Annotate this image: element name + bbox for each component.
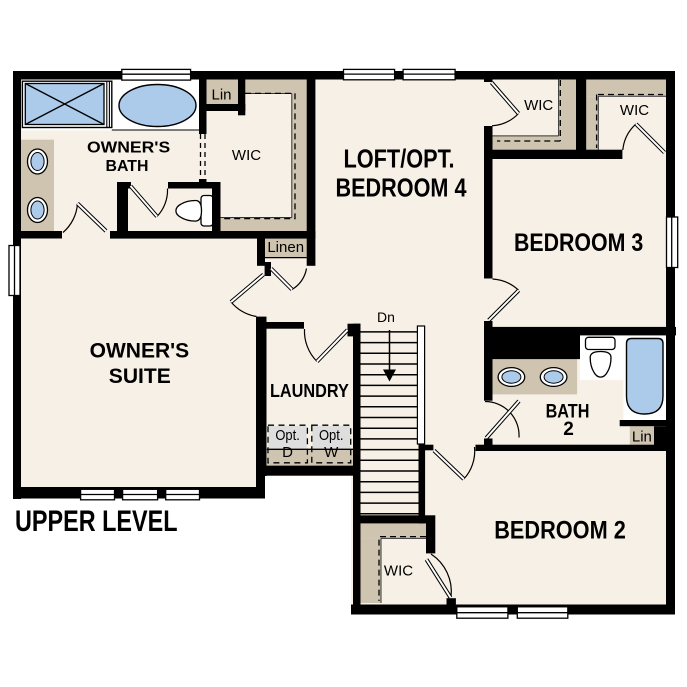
svg-text:BATH: BATH [106,158,149,175]
svg-text:OWNER'S: OWNER'S [87,140,170,157]
svg-text:Opt.: Opt. [275,427,300,444]
svg-text:OWNER'S: OWNER'S [90,339,190,363]
svg-text:Linen: Linen [267,239,304,256]
svg-text:Lin: Lin [211,87,231,104]
svg-text:Lin: Lin [632,429,652,446]
svg-text:SUITE: SUITE [109,364,171,388]
svg-text:WIC: WIC [524,97,553,114]
svg-text:W: W [324,444,339,461]
svg-text:LAUNDRY: LAUNDRY [270,380,349,401]
svg-text:BEDROOM 2: BEDROOM 2 [494,517,626,545]
svg-text:WIC: WIC [384,563,413,580]
svg-text:WIC: WIC [232,147,261,164]
svg-text:Opt.: Opt. [319,427,344,444]
svg-text:Dn: Dn [377,309,395,325]
svg-text:D: D [282,444,293,461]
svg-text:LOFT/OPT.: LOFT/OPT. [344,143,455,173]
svg-text:WIC: WIC [620,102,649,119]
svg-text:UPPER LEVEL: UPPER LEVEL [15,505,178,538]
svg-text:BEDROOM 3: BEDROOM 3 [514,229,643,257]
svg-text:2: 2 [563,419,574,440]
svg-text:BEDROOM 4: BEDROOM 4 [336,172,467,202]
